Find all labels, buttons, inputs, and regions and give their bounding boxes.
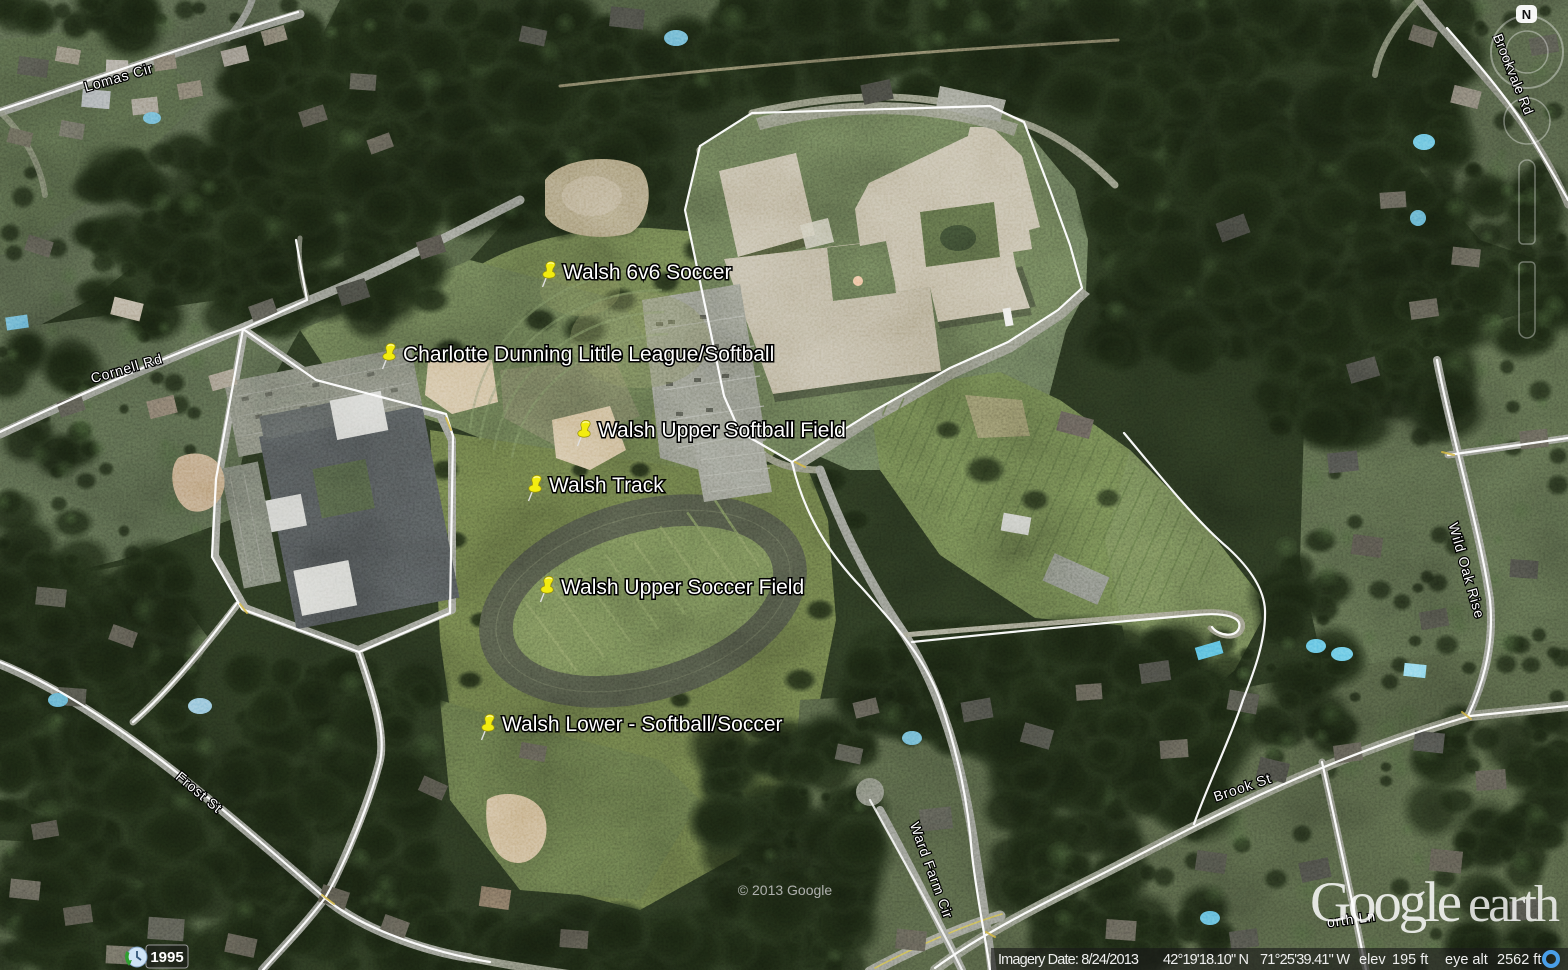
svg-text:Imagery Date: 8/24/2013: Imagery Date: 8/24/2013 [998, 952, 1139, 968]
svg-text:Walsh 6v6 Soccer: Walsh 6v6 Soccer [563, 261, 731, 284]
svg-text:Walsh Upper Softball Field: Walsh Upper Softball Field [598, 419, 846, 442]
svg-text:Walsh Upper Soccer Field: Walsh Upper Soccer Field [561, 576, 804, 599]
svg-text:Walsh Lower - Softball/Soccer: Walsh Lower - Softball/Soccer [502, 713, 783, 736]
svg-text:Charlotte Dunning Little Leagu: Charlotte Dunning Little League/Softball [403, 343, 774, 366]
svg-text:1995: 1995 [150, 949, 183, 966]
svg-text:earth: earth [1468, 876, 1560, 933]
svg-text:2562 ft: 2562 ft [1497, 952, 1541, 968]
svg-text:Walsh Track: Walsh Track [549, 474, 664, 497]
svg-text:71°25'39.41" W: 71°25'39.41" W [1260, 952, 1350, 968]
svg-text:42°19'18.10" N: 42°19'18.10" N [1163, 952, 1249, 968]
svg-text:195 ft: 195 ft [1392, 952, 1428, 968]
svg-text:elev: elev [1359, 952, 1386, 968]
svg-text:Google: Google [1310, 871, 1462, 934]
svg-text:N: N [1522, 7, 1531, 22]
svg-text:© 2013 Google: © 2013 Google [738, 882, 833, 898]
svg-text:eye alt: eye alt [1445, 952, 1488, 968]
